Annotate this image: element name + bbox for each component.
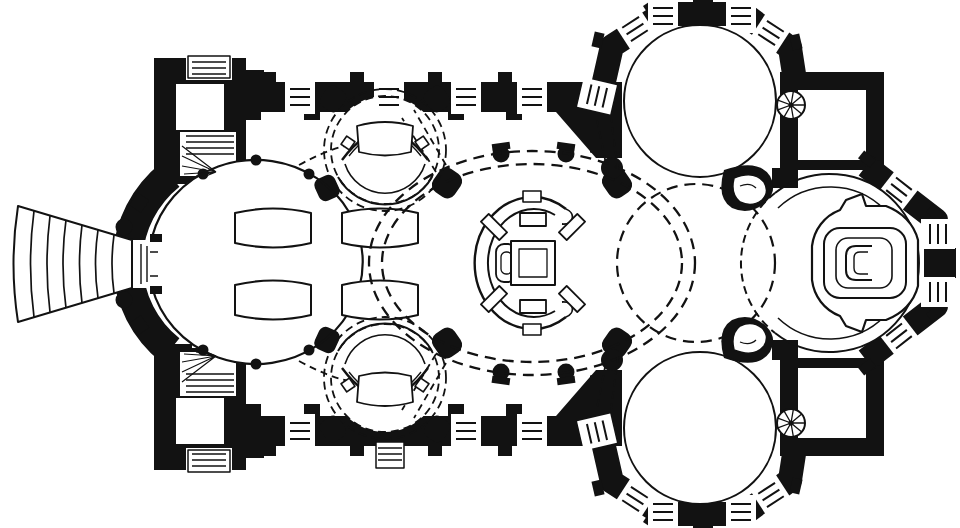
south-spiral-stair bbox=[777, 409, 805, 437]
north-sacristy-room bbox=[798, 90, 866, 160]
sw-tower-room bbox=[176, 398, 224, 444]
crossing-choir-opening bbox=[742, 212, 800, 316]
apse-east-buttress bbox=[934, 248, 956, 278]
floor-plan-canvas bbox=[0, 0, 960, 528]
floor-plan-page bbox=[0, 0, 960, 528]
sw-entry-steps-area bbox=[186, 448, 232, 474]
south-portal-steps bbox=[376, 442, 404, 468]
nw-entry-steps-area bbox=[186, 54, 232, 80]
south-sacristy-room bbox=[798, 368, 866, 438]
nw-tower-room bbox=[176, 84, 224, 130]
north-spiral-stair bbox=[777, 91, 805, 119]
